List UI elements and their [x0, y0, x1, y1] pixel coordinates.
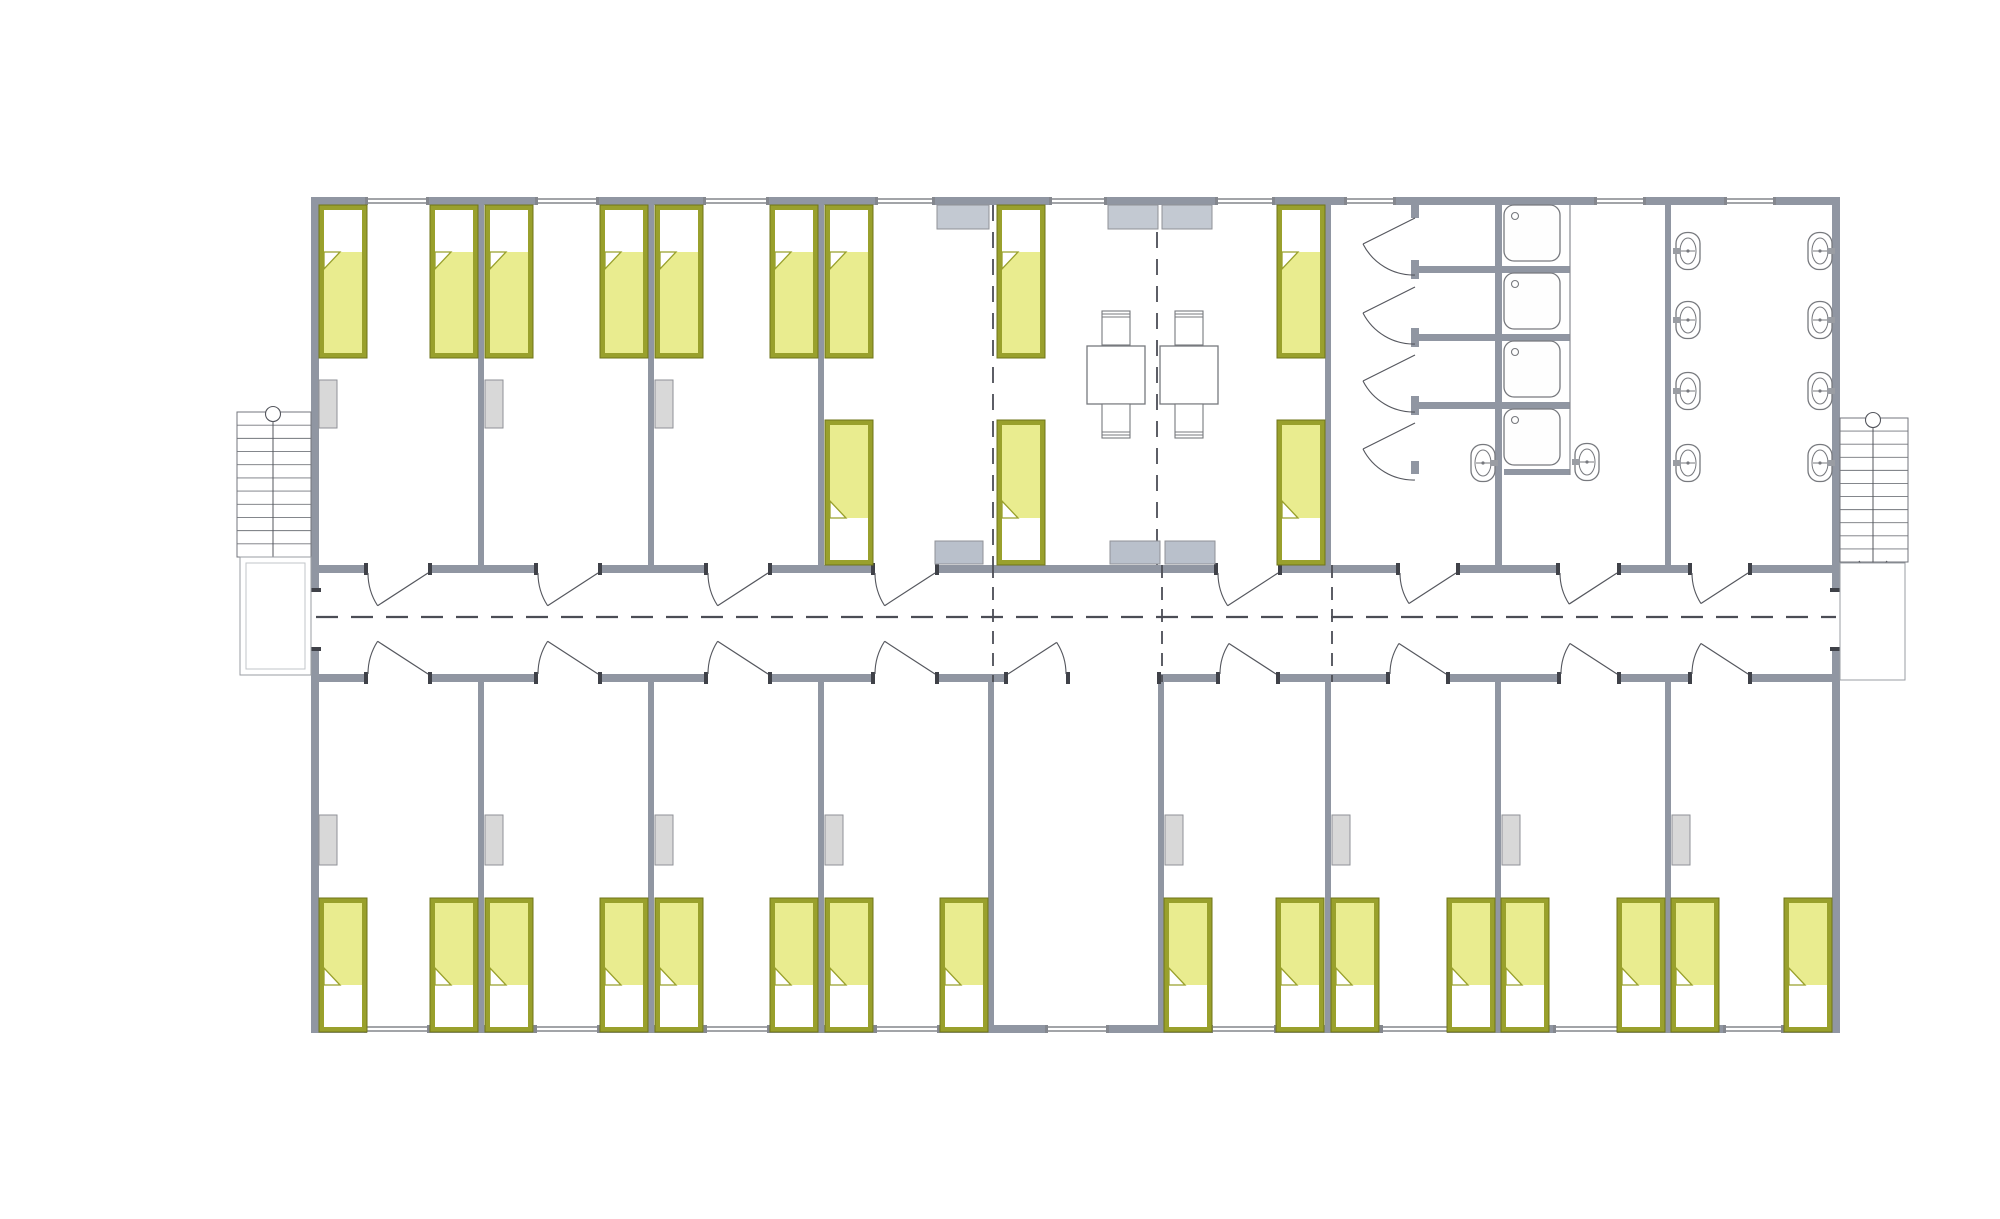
window-jamb	[766, 197, 769, 205]
window-jamb	[1773, 197, 1776, 205]
door	[368, 573, 428, 606]
basin-drain	[1686, 249, 1689, 252]
floor-plan-drawing	[0, 0, 2000, 1219]
door-jamb	[534, 563, 538, 575]
washbasin	[1673, 302, 1700, 339]
door-leaf	[885, 641, 935, 674]
door-swing-arc	[1692, 643, 1701, 674]
basin-tap	[1827, 460, 1835, 466]
bed-pillow	[605, 985, 643, 1027]
door-opening	[708, 564, 768, 574]
door-leaf	[1363, 355, 1415, 381]
bed-mattress	[1002, 425, 1040, 518]
counter	[1110, 541, 1160, 564]
wardrobe	[1672, 815, 1690, 865]
door-opening	[1560, 564, 1617, 574]
door-jamb	[364, 672, 368, 684]
door-swing-arc	[1363, 313, 1415, 344]
window	[1218, 197, 1272, 205]
chair-seat	[1175, 311, 1203, 345]
door-swing-arc	[1692, 573, 1701, 604]
door-opening	[1066, 673, 1157, 683]
window-jamb	[703, 197, 706, 205]
bed-mattress	[1282, 252, 1320, 353]
partition-wall-upper	[478, 205, 484, 565]
bed	[319, 205, 367, 358]
door-swing-arc	[368, 573, 378, 606]
door-swing-arc	[1390, 643, 1399, 674]
door-jamb	[598, 563, 602, 575]
door	[875, 573, 935, 606]
counter	[1165, 541, 1215, 564]
bed-mattress	[1452, 903, 1490, 985]
bed-mattress	[1169, 903, 1207, 985]
door-leaf	[378, 641, 428, 674]
shower-partition	[1415, 402, 1570, 409]
door-jamb	[428, 672, 432, 684]
bed	[319, 898, 367, 1032]
bed	[770, 898, 818, 1032]
stair-exterior-left	[237, 407, 311, 676]
door-jamb	[935, 563, 939, 575]
bed	[430, 898, 478, 1032]
counter	[935, 541, 983, 564]
window-jamb	[426, 197, 429, 205]
bed-mattress	[490, 903, 528, 985]
bed-pillow	[1281, 985, 1319, 1027]
door-jamb	[1214, 563, 1218, 575]
bed	[1501, 898, 1549, 1032]
window	[1727, 197, 1773, 205]
window	[1347, 197, 1393, 205]
entry-landing	[1840, 563, 1905, 680]
bed-mattress	[945, 903, 983, 985]
door-jamb	[1396, 563, 1400, 575]
partition-wall-lower	[478, 682, 484, 1025]
wardrobe	[655, 380, 673, 428]
door-opening	[538, 673, 598, 683]
door-jamb	[1276, 672, 1280, 684]
bed-mattress	[1282, 425, 1320, 518]
bed-mattress	[435, 252, 473, 353]
door-jamb	[364, 563, 368, 575]
shower-partition	[1415, 334, 1570, 341]
bed	[940, 898, 988, 1032]
door-swing-arc	[368, 641, 378, 674]
door-opening	[368, 564, 428, 574]
bed-mattress	[1336, 903, 1374, 985]
door-leaf	[1399, 643, 1446, 674]
window-jamb	[1724, 197, 1727, 205]
bed-pillow	[660, 210, 698, 252]
wardrobe	[1502, 815, 1520, 865]
window	[707, 1025, 767, 1033]
washbasin	[1673, 233, 1700, 270]
counter	[1162, 205, 1212, 229]
chair-seat	[1102, 311, 1130, 345]
door-opening	[1561, 673, 1617, 683]
bed	[1277, 205, 1325, 358]
door	[538, 573, 598, 606]
stair-exterior-right	[1840, 413, 1908, 681]
door-swing-arc	[1218, 573, 1228, 606]
bed-pillow	[775, 210, 813, 252]
bed	[1784, 898, 1832, 1032]
door-jamb	[534, 672, 538, 684]
window-jamb	[704, 1025, 707, 1033]
door-swing-arc	[708, 573, 718, 606]
door-leaf	[1008, 642, 1057, 674]
bed-pillow	[324, 210, 362, 252]
door-opening	[708, 673, 768, 683]
door	[1218, 573, 1278, 606]
window	[1383, 1025, 1447, 1033]
window-jamb	[1393, 197, 1396, 205]
door-opening	[368, 673, 428, 683]
window-jamb	[1272, 197, 1275, 205]
bed-mattress	[1281, 903, 1319, 985]
bed-pillow	[490, 985, 528, 1027]
dining-table	[1087, 346, 1145, 404]
window	[1213, 1025, 1274, 1033]
dining-table	[1160, 346, 1218, 404]
door	[875, 641, 935, 674]
bed	[1447, 898, 1495, 1032]
door-swing-arc	[1560, 573, 1569, 604]
bed-mattress	[605, 252, 643, 353]
door-swing-arc	[538, 641, 548, 674]
stair-outline	[237, 412, 311, 557]
basin-drain	[1818, 249, 1821, 252]
door-jamb	[1157, 672, 1161, 684]
bed-pillow	[605, 210, 643, 252]
basin-drain	[1686, 318, 1689, 321]
window	[1052, 197, 1104, 205]
door-opening	[1692, 564, 1748, 574]
shower-cubicle-door	[1363, 355, 1415, 412]
shower-door-jamb	[1411, 260, 1419, 279]
basin-tap	[1572, 459, 1580, 465]
window	[877, 1025, 937, 1033]
basin-drain	[1481, 461, 1484, 464]
door	[1400, 573, 1456, 604]
window-jamb	[1594, 197, 1597, 205]
partition-wall-lower	[1665, 682, 1671, 1025]
bed-pillow	[945, 985, 983, 1027]
door-jamb	[1748, 563, 1752, 575]
bed-mattress	[490, 252, 528, 353]
stair-start-marker	[1866, 413, 1881, 428]
washbasin	[1808, 233, 1835, 270]
partition-wall-lower	[1495, 682, 1501, 1025]
basin-tap	[1827, 388, 1835, 394]
bed	[1276, 898, 1324, 1032]
basin-tap	[1673, 317, 1681, 323]
window	[367, 1025, 427, 1033]
bed	[655, 898, 703, 1032]
partition-wall-lower	[818, 682, 824, 1025]
washbasin	[1572, 444, 1599, 481]
bed-mattress	[1506, 903, 1544, 985]
window-jamb	[534, 1025, 537, 1033]
door-leaf	[1701, 643, 1748, 674]
bed-mattress	[324, 252, 362, 353]
shower-tray	[1504, 205, 1560, 261]
door-jamb	[1386, 672, 1390, 684]
bed-mattress	[775, 903, 813, 985]
door	[1560, 573, 1617, 604]
window-jamb	[1380, 1025, 1383, 1033]
door-jamb	[1748, 672, 1752, 684]
wardrobe	[319, 380, 337, 428]
shower-partition	[1504, 469, 1570, 475]
door-opening	[875, 564, 935, 574]
door-swing-arc	[1363, 244, 1415, 275]
bed	[997, 205, 1045, 358]
bed	[485, 205, 533, 358]
door-swing-arc	[875, 641, 885, 674]
partition-wall-upper	[1325, 205, 1331, 565]
partition-wall-lower	[1158, 682, 1164, 1025]
door-leaf	[718, 641, 768, 674]
shower-cubicle-door	[1363, 287, 1415, 344]
bed-pillow	[1676, 985, 1714, 1027]
wardrobe	[1332, 815, 1350, 865]
door-swing-arc	[1400, 573, 1409, 604]
bed-mattress	[775, 252, 813, 353]
door-opening	[1218, 564, 1278, 574]
bed	[655, 205, 703, 358]
window	[878, 197, 932, 205]
shower-cubicle-door	[1363, 423, 1415, 480]
bed-pillow	[324, 985, 362, 1027]
bed	[1671, 898, 1719, 1032]
door-jamb	[1557, 672, 1561, 684]
bed	[600, 898, 648, 1032]
chair	[1175, 311, 1203, 345]
door	[708, 641, 768, 674]
bed-mattress	[435, 903, 473, 985]
basin-tap	[1827, 248, 1835, 254]
shower-tray	[1504, 409, 1560, 465]
wardrobe	[1165, 815, 1183, 865]
door-leaf	[1569, 573, 1617, 604]
door-leaf	[885, 573, 935, 606]
basin-drain	[1686, 389, 1689, 392]
door-opening	[1008, 673, 1066, 683]
door-swing-arc	[1561, 643, 1570, 674]
wardrobe	[485, 815, 503, 865]
bed	[770, 205, 818, 358]
door-swing-arc	[708, 641, 718, 674]
door-swing-arc	[1057, 642, 1066, 674]
window-jamb	[874, 1025, 877, 1033]
door-leaf	[548, 573, 598, 606]
shower-block-wall	[1495, 205, 1502, 573]
window-jamb	[1045, 1025, 1048, 1033]
door-jamb	[1617, 672, 1621, 684]
door-swing-arc	[1363, 381, 1415, 412]
door	[1692, 643, 1748, 674]
bed	[997, 420, 1045, 565]
shower-tray	[1504, 273, 1560, 329]
door-jamb	[704, 672, 708, 684]
chair	[1102, 311, 1130, 345]
bed-mattress	[324, 903, 362, 985]
bed-mattress	[605, 903, 643, 985]
door-swing-arc	[1363, 449, 1415, 480]
bed	[825, 898, 873, 1032]
chair-seat	[1102, 404, 1130, 438]
door-jamb	[1617, 563, 1621, 575]
bed-pillow	[830, 518, 868, 560]
basin-tap	[1673, 388, 1681, 394]
basin-drain	[1818, 318, 1821, 321]
door-jamb	[1066, 672, 1070, 684]
door-opening	[1400, 564, 1456, 574]
door	[1692, 573, 1748, 604]
window	[706, 197, 766, 205]
door-jamb	[1004, 672, 1008, 684]
basin-drain	[1818, 461, 1821, 464]
window-jamb	[932, 197, 935, 205]
shower-partition	[1415, 266, 1570, 273]
stair-outline	[1840, 418, 1908, 562]
bed-mattress	[830, 425, 868, 518]
bed-pillow	[1002, 518, 1040, 560]
door-jamb	[704, 563, 708, 575]
bed-mattress	[1676, 903, 1714, 985]
bed-pillow	[1452, 985, 1490, 1027]
window-jamb	[535, 197, 538, 205]
door-leaf	[548, 641, 598, 674]
building-plan	[237, 197, 1908, 1033]
door-leaf	[378, 573, 428, 606]
door	[1390, 643, 1446, 674]
door	[368, 641, 428, 674]
shower-door-jamb	[1411, 205, 1419, 218]
bed-pillow	[1336, 985, 1374, 1027]
bed-mattress	[660, 252, 698, 353]
bed-pillow	[1622, 985, 1660, 1027]
bed	[1277, 420, 1325, 565]
window-jamb	[596, 197, 599, 205]
bed-pillow	[1282, 518, 1320, 560]
window-jamb	[1106, 1025, 1109, 1033]
bed-mattress	[1789, 903, 1827, 985]
wardrobe	[655, 815, 673, 865]
washbasin	[1673, 445, 1700, 482]
door-leaf	[1701, 573, 1748, 604]
bed	[430, 205, 478, 358]
door	[538, 641, 598, 674]
bed	[825, 420, 873, 565]
door-jamb	[768, 672, 772, 684]
partition-wall-lower	[988, 682, 994, 1025]
door-opening	[875, 673, 935, 683]
washbasin	[1808, 445, 1835, 482]
basin-drain	[1818, 389, 1821, 392]
window-jamb	[1643, 197, 1646, 205]
bed-pillow	[1002, 210, 1040, 252]
bed-mattress	[1002, 252, 1040, 353]
chair-seat	[1175, 404, 1203, 438]
window	[538, 197, 596, 205]
door-leaf	[1363, 423, 1415, 449]
window	[1597, 197, 1643, 205]
bed	[1331, 898, 1379, 1032]
door-leaf	[1228, 573, 1278, 606]
door	[1220, 643, 1276, 674]
partition-wall-lower	[1325, 682, 1331, 1025]
bed	[485, 898, 533, 1032]
entry-landing	[240, 557, 311, 675]
door-leaf	[1409, 573, 1456, 604]
door-jamb	[1216, 672, 1220, 684]
window-jamb	[1215, 197, 1218, 205]
door-jamb	[1556, 563, 1560, 575]
window	[537, 1025, 597, 1033]
bed-mattress	[1622, 903, 1660, 985]
window-jamb	[1049, 197, 1052, 205]
window-jamb	[1344, 197, 1347, 205]
door-jamb	[1446, 672, 1450, 684]
basin-drain	[1686, 461, 1689, 464]
basin-tap	[1673, 460, 1681, 466]
bed-pillow	[775, 985, 813, 1027]
basin-tap	[1827, 317, 1835, 323]
door-leaf	[1363, 218, 1415, 244]
washbasin	[1808, 373, 1835, 410]
bed	[600, 205, 648, 358]
bed-pillow	[1506, 985, 1544, 1027]
window	[1556, 1025, 1617, 1033]
door-jamb	[768, 563, 772, 575]
window-jamb	[1723, 1025, 1726, 1033]
bed-mattress	[660, 903, 698, 985]
bed	[1164, 898, 1212, 1032]
chair	[1102, 404, 1130, 438]
door	[708, 573, 768, 606]
basin-tap	[1490, 460, 1498, 466]
door-opening	[538, 564, 598, 574]
door-jamb	[428, 563, 432, 575]
basin-tap	[1673, 248, 1681, 254]
basin-drain	[1585, 460, 1588, 463]
partition-wall-upper	[648, 205, 654, 565]
door-leaf	[1363, 287, 1415, 313]
door-leaf	[718, 573, 768, 606]
bed-pillow	[490, 210, 528, 252]
washbasin	[1808, 302, 1835, 339]
window	[1726, 1025, 1781, 1033]
window	[368, 197, 426, 205]
door-opening	[1220, 673, 1276, 683]
door-swing-arc	[538, 573, 548, 606]
door-jamb	[598, 672, 602, 684]
door-leaf	[1570, 643, 1617, 674]
door-swing-arc	[875, 573, 885, 606]
bed-mattress	[830, 252, 868, 353]
door-jamb	[1688, 563, 1692, 575]
bed-pillow	[660, 985, 698, 1027]
window	[1048, 1025, 1106, 1033]
shower-cubicle-door	[1363, 218, 1415, 275]
door	[1561, 643, 1617, 674]
washbasin	[1673, 373, 1700, 410]
window-jamb	[1104, 197, 1107, 205]
door-opening	[1692, 673, 1748, 683]
